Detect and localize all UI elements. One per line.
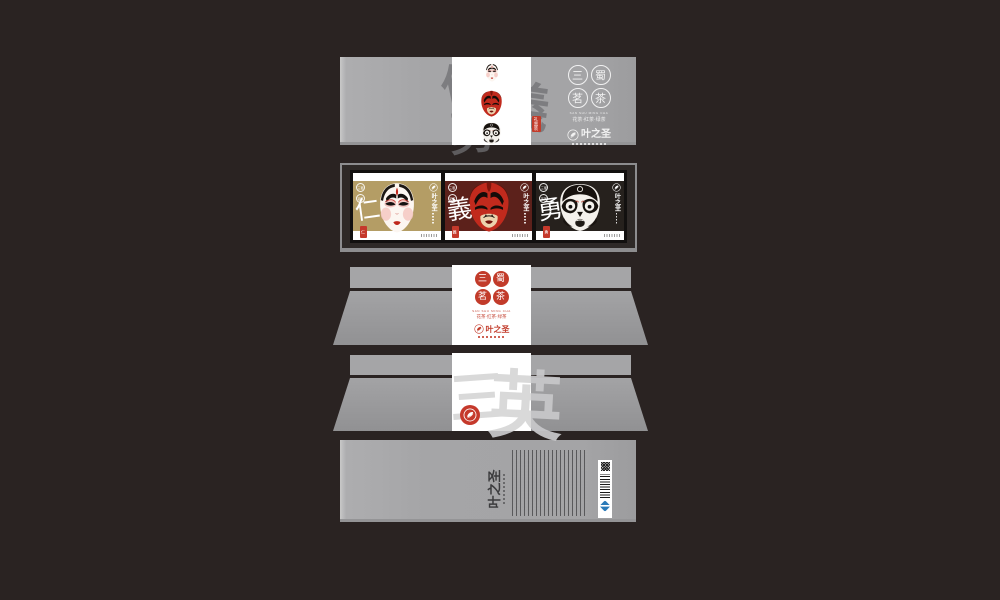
package-face: 三蜀 茗茶 仁 叶之圣 xyxy=(353,181,441,231)
vertical-microtext xyxy=(432,213,434,225)
panel-edge-highlight xyxy=(340,57,346,145)
red-brand-stamp xyxy=(460,405,480,425)
seal-char: 蜀 xyxy=(493,271,509,287)
brand-name-vertical: 叶之圣 xyxy=(614,193,620,211)
opera-mask-black-icon xyxy=(557,181,604,234)
brand-seal-icon xyxy=(463,408,477,422)
series-name-en: SAN SHU MING CHA xyxy=(452,309,531,313)
net-weight-microtext xyxy=(512,234,528,237)
panel-edge-shadow xyxy=(340,519,636,522)
seal-char: 三 xyxy=(475,271,491,287)
virtue-calligraphy: 義 xyxy=(445,195,473,223)
brand-tagline-microtext xyxy=(478,336,506,338)
brand-seal-icon xyxy=(520,183,529,192)
panel-flap-logo: 三 蜀 茗 茶 SAN SHU MING CHA 花茶·红茶·绿茶 叶之圣 xyxy=(333,265,648,345)
seal-char: 三 xyxy=(568,65,588,85)
package-top-band xyxy=(353,173,441,181)
virtue-calligraphy: 勇 xyxy=(537,195,565,223)
barcode-strip xyxy=(598,460,612,518)
watermark-char: 英 xyxy=(486,353,531,431)
package-yong: 三蜀 茗茶 勇 叶之圣 勇 xyxy=(536,173,624,240)
package-face: 三蜀 茗茶 義 叶之圣 xyxy=(445,181,533,231)
seal-char: 茗 xyxy=(568,88,588,108)
opera-mask-red-icon xyxy=(465,181,512,234)
brand-name-vertical: 叶之圣 xyxy=(522,193,528,211)
display-frame: 三蜀 茗茶 仁 叶之圣 仁 xyxy=(342,165,635,248)
brand-seal-icon xyxy=(429,183,438,192)
brand-lockup: 叶之圣 xyxy=(566,129,612,141)
barcode xyxy=(600,474,610,498)
recycle-logo-icon xyxy=(599,500,610,511)
opera-mask-white-icon xyxy=(373,181,420,234)
package-brand-column: 叶之圣 xyxy=(519,183,530,225)
seal-char: 三蜀 xyxy=(539,183,548,192)
panel-flap-stamp: 三 英 三 英 xyxy=(333,353,648,431)
mask-stack xyxy=(452,57,531,145)
series-name-en: SAN SHU MING CHA xyxy=(566,111,612,115)
brand-tagline-microtext xyxy=(572,143,606,145)
net-weight-microtext xyxy=(421,234,437,237)
package-top-band xyxy=(445,173,533,181)
product-info-microtext xyxy=(512,450,588,516)
series-seal-grid-red: 三 蜀 茗 茶 xyxy=(452,271,531,305)
panel-box-bottom: 叶之圣 xyxy=(340,440,636,522)
seal-char: 三蜀 xyxy=(448,183,457,192)
brand-name: 叶之圣 xyxy=(486,325,510,333)
panel-display-box: 三蜀 茗茶 仁 叶之圣 仁 xyxy=(340,163,637,252)
package-brand-column: 叶之圣 xyxy=(611,183,622,225)
opera-mask-red-icon xyxy=(478,90,505,118)
flap-center-strip: 三 蜀 茗 茶 SAN SHU MING CHA 花茶·红茶·绿茶 叶之圣 xyxy=(452,265,531,345)
brand-name: 叶之圣 xyxy=(581,130,611,140)
seal-char: 茗 xyxy=(475,289,491,305)
virtue-stamp: 仁 xyxy=(360,226,367,238)
seal-char: 茶 xyxy=(493,289,509,305)
tea-types: 花茶·红茶·绿茶 xyxy=(566,116,612,123)
brand-tagline-microtext xyxy=(503,474,505,504)
seal-char: 蜀 xyxy=(591,65,611,85)
package-brand-column: 叶之圣 xyxy=(428,183,439,225)
brand-seal-icon xyxy=(474,324,484,334)
display-inner: 三蜀 茗茶 仁 叶之圣 仁 xyxy=(350,170,627,243)
flap-center-strip: 三 英 xyxy=(452,353,531,431)
vertical-microtext xyxy=(524,213,526,225)
opera-mask-white-icon xyxy=(481,63,503,82)
brand-name-vertical: 叶之圣 xyxy=(430,193,436,211)
design-board: 仁 義 勇 仁 義 勇 礼盒装 三 蜀 茗 茶 SAN SHU MING CHA… xyxy=(0,0,1000,600)
package-yi: 三蜀 茗茶 義 叶之圣 義 xyxy=(445,173,533,240)
brand-name: 叶之圣 xyxy=(489,470,502,509)
brand-seal-icon xyxy=(612,183,621,192)
seal-char: 三蜀 xyxy=(356,183,365,192)
tea-types: 花茶·红茶·绿茶 xyxy=(452,314,531,320)
package-ren: 三蜀 茗茶 仁 叶之圣 仁 xyxy=(353,173,441,240)
panel-edge-highlight xyxy=(340,440,346,522)
net-weight-microtext xyxy=(604,234,620,237)
seal-char: 茶 xyxy=(591,88,611,108)
lid-logo-block: 三 蜀 茗 茶 SAN SHU MING CHA 花茶·红茶·绿茶 叶之圣 xyxy=(566,65,612,145)
package-face: 三蜀 茗茶 勇 叶之圣 xyxy=(536,181,624,231)
package-top-band xyxy=(536,173,624,181)
qs-mark-icon xyxy=(601,462,610,471)
virtue-calligraphy: 仁 xyxy=(353,195,381,223)
series-seal-grid: 三 蜀 茗 茶 xyxy=(566,65,612,108)
virtue-stamp: 義 xyxy=(452,226,459,238)
virtue-stamp: 勇 xyxy=(543,226,550,238)
lid-center-strip: 仁 義 勇 xyxy=(452,57,531,145)
brand-seal-icon xyxy=(567,129,579,141)
opera-mask-black-icon xyxy=(477,122,506,145)
rotated-brand-lockup: 叶之圣 xyxy=(489,468,505,510)
panel-box-lid: 仁 義 勇 仁 義 勇 礼盒装 三 蜀 茗 茶 SAN SHU MING CHA… xyxy=(340,57,636,145)
brand-lockup: 叶之圣 xyxy=(452,324,531,334)
gift-box-seal: 礼盒装 xyxy=(532,116,541,132)
vertical-microtext xyxy=(616,213,618,225)
